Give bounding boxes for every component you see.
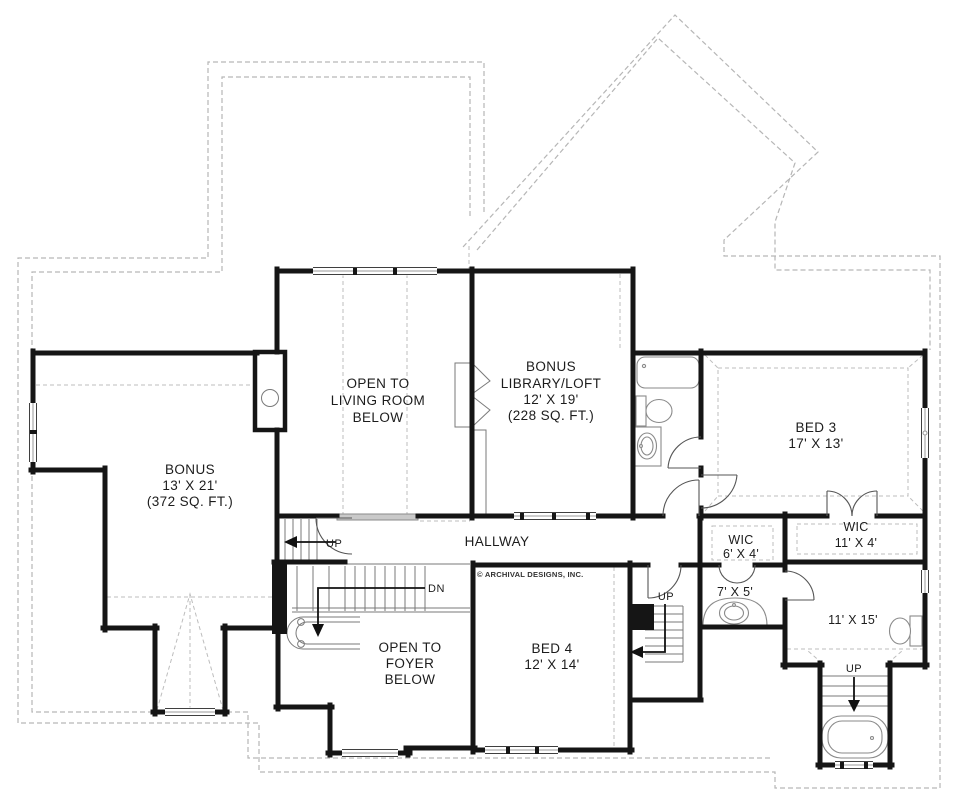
- arrow-up-right: [848, 677, 860, 712]
- bonus-dims: 13' X 21': [162, 478, 217, 493]
- bed3-label: BED 3: [795, 420, 836, 435]
- bonus-label: BONUS: [165, 462, 215, 477]
- room-11x15-fixtures: [822, 616, 922, 758]
- window: [342, 749, 398, 758]
- walls: [31, 269, 927, 767]
- bath-7x5-fixtures: [703, 598, 767, 626]
- copyright-text: © ARCHIVAL DESIGNS, INC.: [477, 570, 583, 579]
- door-arc: [668, 437, 701, 468]
- wic-small-label: WIC: [728, 533, 753, 547]
- up-label-middle: UP: [658, 591, 674, 603]
- window: [921, 408, 930, 458]
- bonus-area: (372 SQ. FT.): [147, 494, 233, 509]
- open-living-label: OPEN TO: [346, 376, 409, 391]
- door-arc: [719, 565, 755, 583]
- up-label-right: UP: [846, 663, 862, 675]
- open-living-label: LIVING ROOM: [331, 393, 425, 408]
- window: [29, 403, 38, 462]
- hall-railing: [337, 514, 418, 520]
- toilet-tank-icon: [636, 396, 646, 426]
- toilet-icon: [646, 400, 672, 423]
- door-arc: [701, 475, 737, 508]
- wic-large-dims: 11' X 4': [835, 536, 877, 550]
- bed4-dims: 12' X 14': [524, 657, 579, 672]
- up-label-left: UP: [326, 538, 342, 550]
- window: [165, 708, 215, 717]
- window: [485, 746, 558, 755]
- library-dims: 12' X 19': [523, 392, 578, 407]
- library-area: (228 SQ. FT.): [508, 408, 594, 423]
- window: [835, 761, 873, 770]
- bath-7x5-dims: 7' X 5': [717, 585, 753, 599]
- door-arc: [827, 491, 852, 516]
- toilet-tank-icon: [910, 616, 922, 646]
- library-label: LIBRARY/LOFT: [501, 376, 602, 391]
- open-foyer-label: OPEN TO: [378, 640, 441, 655]
- bed3-dims: 17' X 13': [788, 436, 843, 451]
- door-arc: [663, 480, 699, 516]
- stairs-dn: [287, 564, 470, 649]
- hallway-label: HALLWAY: [465, 534, 530, 549]
- window: [514, 512, 596, 521]
- door-arc: [852, 491, 877, 516]
- wic-small-dims: 6' X 4': [723, 547, 759, 561]
- toilet-icon: [890, 618, 911, 644]
- bed4-label: BED 4: [531, 641, 572, 656]
- door-arc: [785, 571, 814, 600]
- open-foyer-label: BELOW: [385, 672, 436, 687]
- open-living-label: BELOW: [353, 410, 404, 425]
- window: [313, 267, 437, 276]
- open-foyer-label: FOYER: [386, 656, 435, 671]
- library-label: BONUS: [526, 359, 576, 374]
- window: [921, 570, 930, 593]
- floorplan-page: OPEN TO LIVING ROOM BELOW BONUS LIBRARY/…: [0, 0, 960, 808]
- room-11x15-dims: 11' X 15': [828, 613, 878, 627]
- bathroom-top-fixtures: [634, 357, 699, 466]
- floorplan-canvas: OPEN TO LIVING ROOM BELOW BONUS LIBRARY/…: [0, 0, 960, 808]
- dn-label: DN: [428, 583, 445, 595]
- wic-large-label: WIC: [843, 520, 868, 534]
- chase-closet: [255, 352, 285, 430]
- tub-icon: [637, 357, 699, 388]
